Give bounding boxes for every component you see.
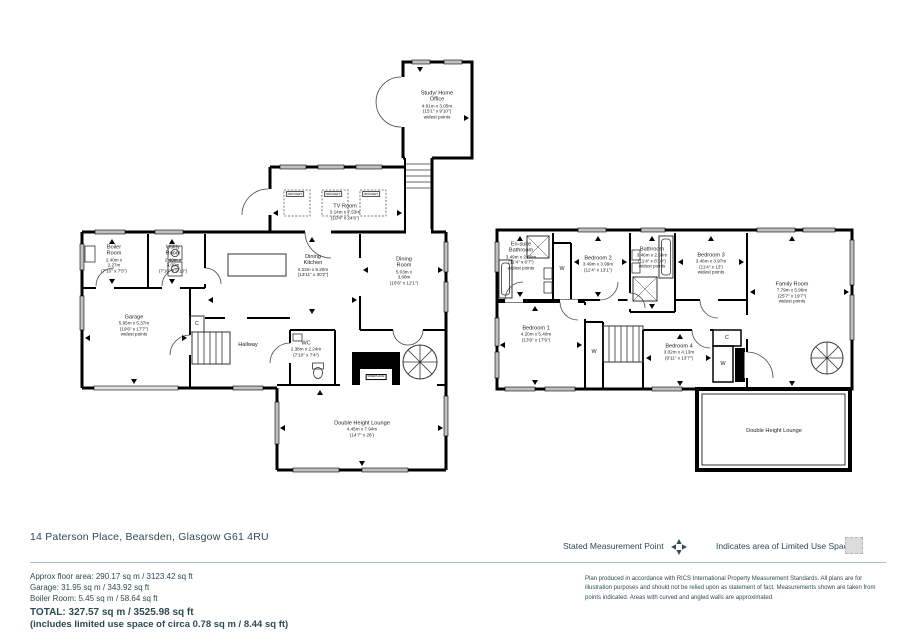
- room-label-bathroom: Bathroom 3.46m x 2.69m (11'4" x 8'10") w…: [635, 247, 669, 270]
- skylight-label: SKYLIGHT: [362, 191, 380, 197]
- room-label-lounge: Double Height Lounge 4.45m x 7.94m (14'7…: [317, 420, 407, 437]
- garage-area-line: Garage: 31.95 sq m / 343.92 sq ft: [30, 582, 288, 593]
- limited-use-swatch: [845, 537, 863, 554]
- measurement-point-icon: [669, 537, 689, 557]
- skylight-label: SKYLIGHT: [286, 191, 304, 197]
- room-label-void-lounge: Double Height Lounge: [719, 428, 829, 434]
- room-label-kitchen: Dining Kitchen 4.23m x 9.20m (13'11" x 3…: [296, 254, 330, 278]
- cupboard-label: C: [725, 335, 729, 341]
- cupboard-label: C: [195, 321, 199, 327]
- property-address: 14 Paterson Place, Bearsden, Glasgow G61…: [30, 531, 269, 543]
- approx-area-line: Approx floor area: 290.17 sq m / 3123.42…: [30, 571, 288, 582]
- room-label-dining: Dining Room 5.03m x 3.68m (16'6" x 12'1"…: [389, 256, 419, 285]
- room-label-wc: WC 2.38m x 2.24m (7'10" x 7'4"): [289, 340, 323, 357]
- room-label-utility: Utility Room 2.40m x 3.00m (7'10" x 9'10…: [158, 244, 188, 273]
- room-label-family: Family Room 7.79m x 5.96m (25'7" x 19'7"…: [775, 282, 809, 305]
- limited-use-label: Indicates area of Limited Use Space: [716, 541, 853, 551]
- room-label-bedroom1: Bedroom 1 4.20m x 5.40m (13'9" x 17'9"): [508, 325, 564, 342]
- room-label-garage: Garage 5.95m x 5.37m (19'6" x 17'7") wid…: [109, 315, 159, 338]
- room-label-bedroom3: Bedroom 3 3.46m x 3.97m (11'4" x 13') wi…: [685, 253, 737, 276]
- area-summary: Approx floor area: 290.17 sq m / 3123.42…: [30, 571, 288, 632]
- limited-area-line: (includes limited use space of circa 0.7…: [30, 619, 288, 632]
- room-label-tv-room: TV Room 3.14m x 7.53m (10'4" x 24'8"): [325, 203, 365, 220]
- room-label-bedroom2: Bedroom 2 3.49m x 3.99m (11'4" x 13'1"): [570, 255, 626, 272]
- room-label-boiler: Boiler Room 2.40m x 2.27m (7'10" x 7'5"): [99, 244, 129, 273]
- room-label-ensuite: En-suite Bathroom 3.49m x 2.00m (11'4" x…: [505, 241, 537, 270]
- wardrobe-label: W: [559, 266, 564, 272]
- room-label-study: Study/ Home Office 4.81m x 3.05m (15'1" …: [414, 90, 460, 119]
- wardrobe-label: W: [591, 349, 596, 355]
- fireplace-label: FIREPLACE: [366, 374, 387, 380]
- room-label-hallway: Hallway: [228, 342, 268, 348]
- total-area-line: TOTAL: 327.57 sq m / 3525.98 sq ft: [30, 606, 288, 619]
- skylight-label: SKYLIGHT: [324, 191, 342, 197]
- wardrobe-label: W: [720, 361, 725, 367]
- room-label-bedroom4: Bedroom 4 3.02m x 4.13m (9'11" x 13'7"): [651, 343, 707, 360]
- measurement-point-label: Stated Measurement Point: [563, 541, 664, 551]
- disclaimer-text: Plan produced in accordance with RICS In…: [585, 575, 885, 603]
- boiler-area-line: Boiler Room: 5.45 sq m / 58.64 sq ft: [30, 593, 288, 604]
- footer-divider: [30, 562, 886, 563]
